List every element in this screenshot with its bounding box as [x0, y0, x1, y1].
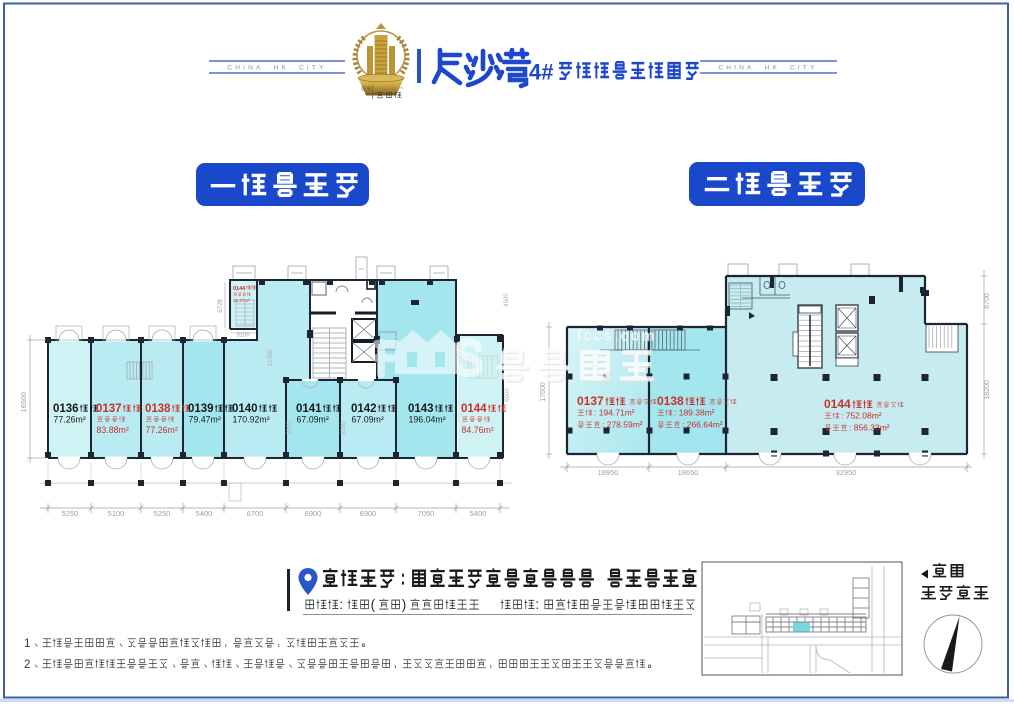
- svg-text:32950: 32950: [836, 468, 857, 477]
- svg-text:CHINA HK CITY: CHINA HK CITY: [227, 65, 326, 72]
- svg-text:9200: 9200: [341, 421, 347, 435]
- svg-text:0140: 0140: [232, 403, 258, 415]
- svg-text:4500: 4500: [504, 293, 510, 307]
- svg-text:18200: 18200: [984, 380, 991, 400]
- svg-text:5400: 5400: [196, 509, 213, 518]
- svg-text:35.47m²: 35.47m²: [233, 298, 250, 303]
- svg-text:77.26m²: 77.26m²: [54, 415, 86, 425]
- svg-text:3100: 3100: [236, 333, 250, 339]
- svg-text:0137: 0137: [577, 394, 604, 408]
- svg-text:(: (: [371, 597, 376, 612]
- svg-text:5728: 5728: [218, 299, 224, 313]
- svg-text:CHINA HK CITY: CHINA HK CITY: [379, 87, 404, 91]
- svg-text:18950: 18950: [598, 468, 619, 477]
- svg-text:84.76m²: 84.76m²: [462, 425, 494, 435]
- svg-text:: 752.08m²: : 752.08m²: [841, 411, 882, 421]
- svg-text:5400: 5400: [470, 509, 487, 518]
- svg-text:1: 1: [24, 638, 30, 650]
- svg-text:18650: 18650: [678, 468, 699, 477]
- svg-text:83.88m²: 83.88m²: [97, 425, 129, 435]
- svg-text:17600: 17600: [540, 382, 547, 402]
- svg-text:0144: 0144: [233, 286, 246, 292]
- svg-text:: 194.71m²: : 194.71m²: [594, 408, 635, 418]
- svg-text:6700: 6700: [247, 509, 264, 518]
- svg-text:0138: 0138: [145, 403, 171, 415]
- svg-text:16500: 16500: [19, 392, 28, 413]
- svg-text:0139: 0139: [188, 403, 214, 415]
- svg-text:2: 2: [24, 659, 30, 671]
- svg-text:fccs.com: fccs.com: [578, 328, 657, 345]
- svg-text:: 856.33m²: : 856.33m²: [849, 423, 890, 433]
- svg-text:5100: 5100: [108, 509, 125, 518]
- svg-text:79.47m²: 79.47m²: [189, 415, 221, 425]
- svg-text:6900: 6900: [360, 509, 377, 518]
- svg-text::: :: [339, 597, 343, 612]
- svg-text:: 189.38m²: : 189.38m²: [674, 408, 715, 418]
- svg-text:0144: 0144: [461, 403, 487, 415]
- svg-text:6900: 6900: [305, 509, 322, 518]
- svg-text:6900: 6900: [505, 388, 511, 402]
- svg-text:): ): [402, 597, 407, 612]
- svg-text:5250: 5250: [154, 509, 171, 518]
- svg-text:6700: 6700: [984, 293, 991, 309]
- svg-text:0141: 0141: [296, 403, 322, 415]
- svg-text::: :: [535, 597, 539, 612]
- svg-text:67.09m²: 67.09m²: [352, 415, 384, 425]
- svg-text:: 278.59m²: : 278.59m²: [602, 420, 643, 430]
- svg-text:CHINA HK CITY: CHINA HK CITY: [718, 65, 817, 72]
- svg-text:: 266.64m²: : 266.64m²: [682, 420, 723, 430]
- svg-text:21350: 21350: [268, 349, 274, 366]
- svg-text:67.09m²: 67.09m²: [297, 415, 329, 425]
- svg-text:170.92m²: 170.92m²: [233, 415, 270, 425]
- svg-text:196.04m²: 196.04m²: [409, 415, 446, 425]
- svg-text:0144: 0144: [824, 397, 851, 411]
- svg-text:77.26m²: 77.26m²: [146, 425, 178, 435]
- svg-text:4#: 4#: [529, 60, 553, 85]
- svg-text:7050: 7050: [418, 509, 435, 518]
- svg-text:9200: 9200: [287, 421, 293, 435]
- svg-text:0137: 0137: [96, 403, 122, 415]
- svg-text:5250: 5250: [62, 509, 79, 518]
- svg-text:0143: 0143: [408, 403, 434, 415]
- svg-text:0138: 0138: [657, 394, 684, 408]
- svg-text:0142: 0142: [351, 403, 377, 415]
- svg-text:0136: 0136: [53, 403, 79, 415]
